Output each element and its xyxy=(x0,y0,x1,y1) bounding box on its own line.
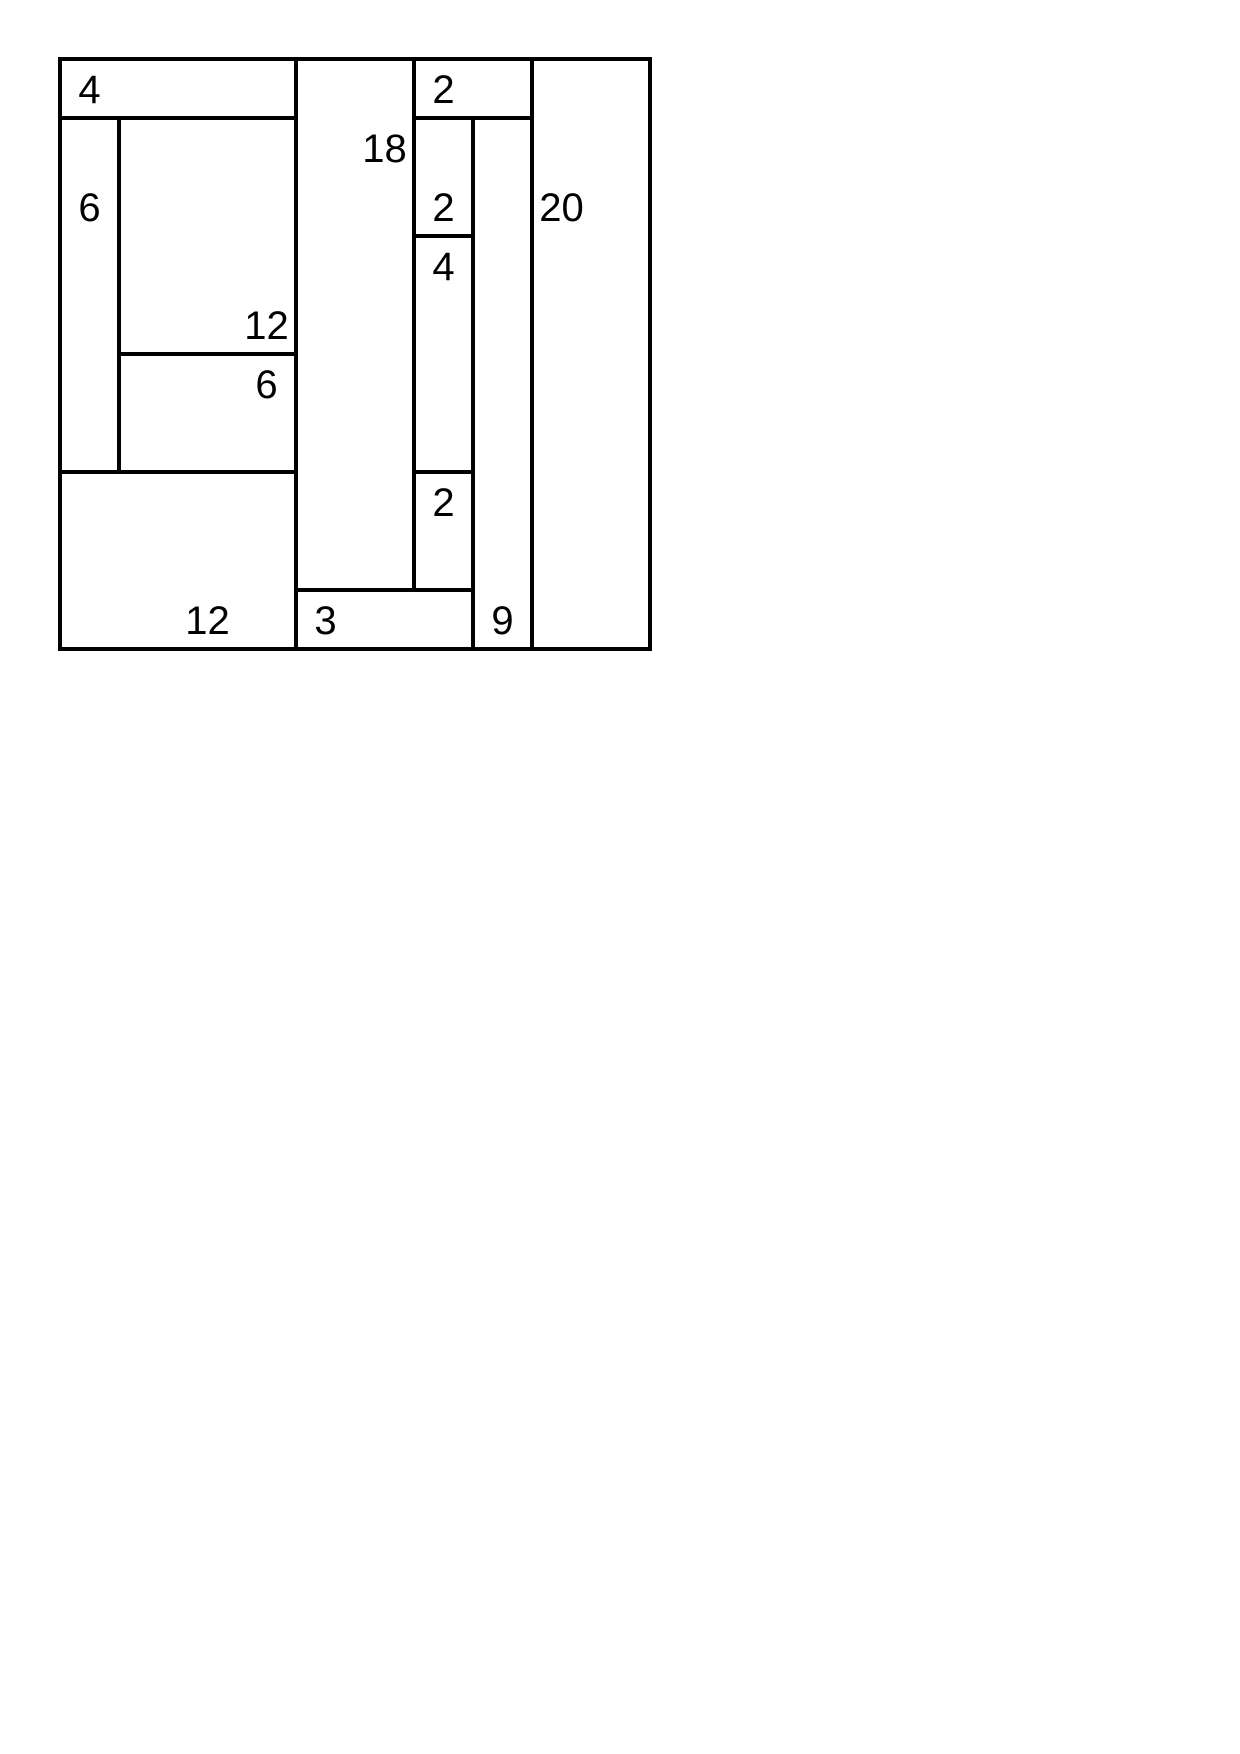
region-clue-label: 4 xyxy=(414,236,473,295)
region-clue-label: 3 xyxy=(296,590,355,649)
region-clue-label: 12 xyxy=(178,590,237,649)
region-clue-label: 20 xyxy=(532,177,591,236)
region-clue-label: 18 xyxy=(355,118,414,177)
region-clue-label: 12 xyxy=(237,295,296,354)
region-clue-label: 6 xyxy=(60,177,119,236)
worksheet-page: 46126121822423920 xyxy=(0,0,1240,1754)
shikaku-puzzle: 46126121822423920 xyxy=(0,0,1240,1754)
region-rect xyxy=(58,116,121,474)
region-clue-label: 9 xyxy=(473,590,532,649)
region-clue-label: 4 xyxy=(60,59,119,118)
region-clue-label: 2 xyxy=(414,59,473,118)
region-clue-label: 2 xyxy=(414,472,473,531)
region-rect xyxy=(530,57,652,651)
region-rect xyxy=(471,116,534,651)
region-clue-label: 6 xyxy=(237,354,296,413)
region-clue-label: 2 xyxy=(414,177,473,236)
